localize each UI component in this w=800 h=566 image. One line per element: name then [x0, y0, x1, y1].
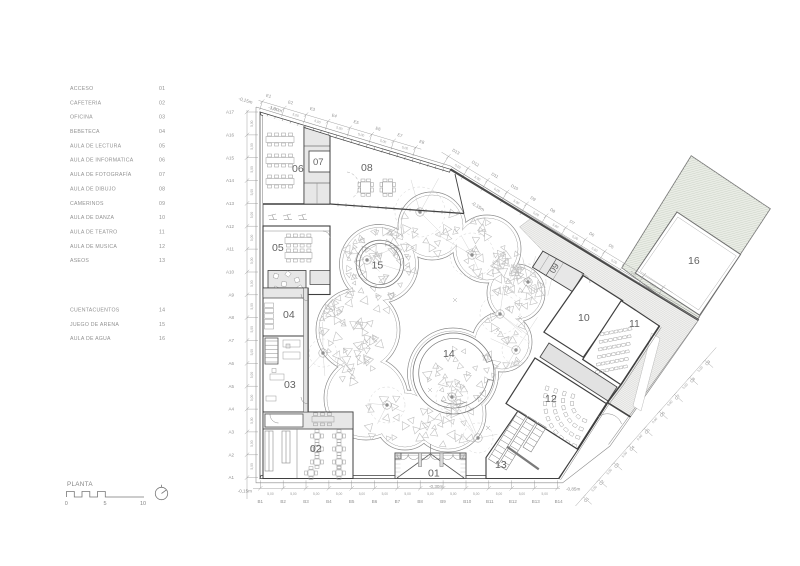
- svg-text:B11: B11: [486, 499, 494, 504]
- svg-text:07: 07: [159, 172, 165, 178]
- svg-text:A14: A14: [226, 178, 235, 183]
- svg-text:03: 03: [284, 379, 296, 391]
- svg-text:A9: A9: [228, 292, 234, 297]
- svg-text:08: 08: [361, 162, 373, 174]
- svg-text:AULA DE DIBUJO: AULA DE DIBUJO: [70, 186, 116, 192]
- svg-text:CAMERINOS: CAMERINOS: [70, 201, 104, 207]
- svg-text:02: 02: [310, 443, 322, 455]
- svg-text:CAFETERIA: CAFETERIA: [70, 100, 102, 106]
- svg-text:04: 04: [283, 309, 295, 321]
- svg-text:5,00: 5,00: [382, 492, 389, 496]
- svg-text:10: 10: [159, 215, 165, 221]
- svg-text:PLANTA: PLANTA: [67, 481, 93, 488]
- svg-text:A5: A5: [228, 384, 234, 389]
- svg-text:A3: A3: [228, 430, 234, 435]
- svg-text:B6: B6: [372, 499, 378, 504]
- svg-text:-0,85m: -0,85m: [566, 487, 580, 492]
- svg-text:-0,15m: -0,15m: [238, 489, 252, 494]
- svg-text:03: 03: [159, 115, 165, 121]
- svg-text:10: 10: [578, 312, 590, 324]
- svg-text:A6: A6: [228, 361, 234, 366]
- svg-text:5,00: 5,00: [250, 143, 254, 150]
- svg-text:07: 07: [313, 157, 324, 168]
- svg-text:CUENTACUENTOS: CUENTACUENTOS: [70, 308, 120, 314]
- svg-text:11: 11: [629, 318, 640, 330]
- svg-text:5: 5: [104, 501, 107, 507]
- svg-text:14: 14: [443, 348, 455, 360]
- svg-text:B4: B4: [326, 499, 332, 504]
- svg-text:01: 01: [159, 86, 165, 92]
- svg-text:ACCESO: ACCESO: [70, 86, 93, 92]
- svg-text:5,00: 5,00: [250, 326, 254, 333]
- svg-text:5,00: 5,00: [473, 492, 480, 496]
- svg-text:5,00: 5,00: [336, 492, 343, 496]
- svg-text:5,00: 5,00: [250, 440, 254, 447]
- svg-text:5,00: 5,00: [250, 212, 254, 219]
- svg-text:A16: A16: [226, 133, 235, 138]
- svg-text:5,00: 5,00: [450, 492, 457, 496]
- svg-text:13: 13: [495, 459, 507, 471]
- svg-text:16: 16: [159, 336, 165, 342]
- svg-text:5,00: 5,00: [250, 303, 254, 310]
- svg-text:A2: A2: [228, 452, 234, 457]
- svg-text:12: 12: [159, 244, 165, 250]
- svg-text:5,00: 5,00: [250, 166, 254, 173]
- svg-text:5,00: 5,00: [267, 492, 274, 496]
- svg-text:12: 12: [545, 393, 557, 405]
- svg-text:5,00: 5,00: [250, 463, 254, 470]
- svg-text:05: 05: [272, 242, 284, 254]
- svg-text:B7: B7: [395, 499, 401, 504]
- svg-text:5,00: 5,00: [250, 372, 254, 379]
- svg-text:15: 15: [372, 260, 384, 272]
- svg-text:AULA DE LECTURA: AULA DE LECTURA: [70, 143, 122, 149]
- svg-text:JUEGO DE ARENA: JUEGO DE ARENA: [70, 322, 119, 328]
- svg-text:5,00: 5,00: [250, 395, 254, 402]
- svg-text:5,00: 5,00: [290, 492, 297, 496]
- svg-text:B5: B5: [349, 499, 355, 504]
- svg-text:B12: B12: [509, 499, 518, 504]
- svg-text:A15: A15: [226, 155, 235, 160]
- svg-text:01: 01: [428, 468, 440, 480]
- svg-text:B9: B9: [440, 499, 446, 504]
- svg-text:AULA DE TEATRO: AULA DE TEATRO: [70, 230, 117, 236]
- svg-text:AULA DE AGUA: AULA DE AGUA: [70, 336, 111, 342]
- svg-text:13: 13: [159, 258, 165, 264]
- svg-text:15: 15: [159, 322, 165, 328]
- svg-text:02: 02: [159, 100, 165, 106]
- svg-text:AULA DE MUSICA: AULA DE MUSICA: [70, 244, 117, 250]
- svg-text:BEBETECA: BEBETECA: [70, 129, 100, 135]
- svg-text:B14: B14: [555, 499, 564, 504]
- svg-text:14: 14: [159, 308, 165, 314]
- svg-text:06: 06: [292, 163, 304, 175]
- svg-text:B13: B13: [532, 499, 541, 504]
- svg-text:5,00: 5,00: [250, 189, 254, 196]
- svg-text:5,00: 5,00: [250, 120, 254, 127]
- svg-text:B8: B8: [417, 499, 423, 504]
- svg-text:5,00: 5,00: [313, 492, 320, 496]
- svg-text:5,00: 5,00: [542, 492, 549, 496]
- svg-text:B3: B3: [303, 499, 309, 504]
- svg-text:5,00: 5,00: [427, 492, 434, 496]
- svg-text:0: 0: [65, 501, 68, 507]
- svg-text:B10: B10: [463, 499, 472, 504]
- svg-text:5,00: 5,00: [496, 492, 503, 496]
- svg-text:10: 10: [140, 501, 146, 507]
- svg-text:AULA DE FOTOGRAFÍA: AULA DE FOTOGRAFÍA: [70, 171, 132, 178]
- svg-text:A10: A10: [226, 270, 235, 275]
- svg-text:A11: A11: [226, 247, 234, 252]
- svg-text:A8: A8: [228, 315, 234, 320]
- svg-text:5,00: 5,00: [250, 257, 254, 264]
- svg-text:OFICINA: OFICINA: [70, 115, 93, 121]
- svg-text:06: 06: [159, 158, 165, 164]
- svg-text:AULA DE DANZA: AULA DE DANZA: [70, 215, 114, 221]
- svg-text:A4: A4: [228, 407, 234, 412]
- svg-text:5,00: 5,00: [250, 349, 254, 356]
- svg-text:5,00: 5,00: [359, 492, 366, 496]
- svg-text:09: 09: [159, 201, 165, 207]
- svg-text:5,00: 5,00: [250, 280, 254, 287]
- svg-text:AULA DE INFORMATICA: AULA DE INFORMATICA: [70, 158, 134, 164]
- svg-text:A17: A17: [226, 110, 235, 115]
- svg-text:A13: A13: [226, 201, 235, 206]
- svg-text:A12: A12: [226, 224, 235, 229]
- svg-text:05: 05: [159, 143, 165, 149]
- svg-text:04: 04: [159, 129, 165, 135]
- svg-text:5,00: 5,00: [250, 417, 254, 424]
- svg-text:16: 16: [688, 255, 700, 267]
- svg-text:B2: B2: [280, 499, 286, 504]
- svg-text:-0,30m: -0,30m: [429, 484, 443, 489]
- svg-text:11: 11: [159, 230, 165, 236]
- svg-text:08: 08: [159, 186, 165, 192]
- svg-text:A1: A1: [228, 475, 234, 480]
- svg-text:5,00: 5,00: [250, 235, 254, 242]
- svg-text:B1: B1: [258, 499, 264, 504]
- svg-text:5,00: 5,00: [519, 492, 526, 496]
- svg-text:5,00: 5,00: [404, 492, 411, 496]
- svg-text:ASEOS: ASEOS: [70, 258, 89, 264]
- svg-text:A7: A7: [228, 338, 234, 343]
